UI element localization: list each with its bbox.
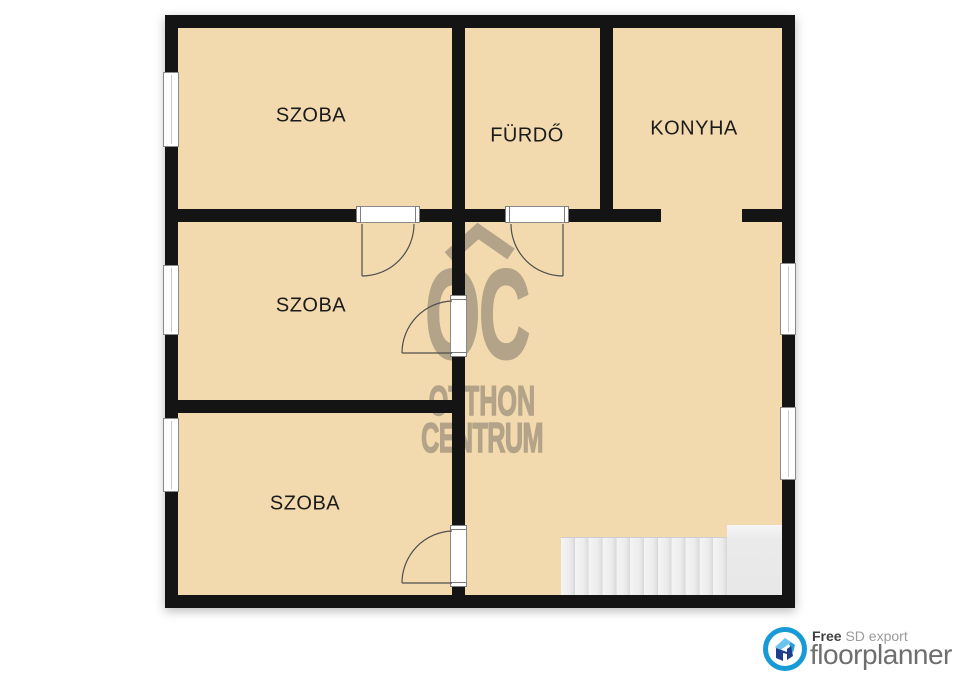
door-post — [450, 352, 467, 357]
window-glass — [171, 75, 172, 144]
window-right-lower — [780, 407, 796, 480]
wall-h2-szoba-divider — [165, 400, 465, 413]
door-post — [450, 582, 467, 587]
wall-outer-bottom — [165, 595, 795, 608]
door-opening-furdo — [505, 206, 569, 223]
wall-center-vertical-middle — [452, 355, 465, 525]
floorplanner-branding: Free SD export floorplanner — [762, 622, 952, 676]
staircase-landing — [727, 525, 782, 595]
door-opening-szoba-top — [356, 206, 420, 223]
door-post — [356, 206, 361, 223]
room-label-konyha: KONYHA — [650, 118, 737, 141]
door-post — [505, 206, 510, 223]
staircase-steps — [561, 537, 727, 596]
window-glass — [788, 266, 789, 332]
wall-furdo-konyha — [600, 15, 613, 222]
door-post — [415, 206, 420, 223]
door-opening-szoba-middle — [450, 295, 467, 357]
door-post — [450, 525, 467, 530]
watermark-monogram: OC — [425, 252, 529, 378]
window-left-middle — [163, 265, 179, 335]
door-post — [564, 206, 569, 223]
room-label-furdo: FÜRDŐ — [490, 125, 564, 148]
floorplanner-wordmark: floorplanner — [810, 639, 952, 671]
door-post — [450, 295, 467, 300]
window-glass — [171, 421, 172, 489]
room-label-szoba-top: SZOBA — [276, 105, 346, 128]
window-glass — [171, 268, 172, 332]
window-left-top — [163, 72, 179, 147]
wall-h1-konyha-stub-right — [742, 209, 795, 222]
room-label-szoba-middle: SZOBA — [276, 295, 346, 318]
watermark-line2: CENTRUM — [421, 417, 543, 459]
window-right-upper — [780, 263, 796, 335]
floorplan-export-canvas: OC OTTHON CENTRUM — [0, 0, 960, 679]
wall-center-vertical-lower — [452, 585, 465, 608]
door-opening-szoba-bottom — [450, 525, 467, 587]
wall-h1-konyha-stub-left — [567, 209, 661, 222]
window-left-bottom — [163, 418, 179, 492]
wall-h1-mid — [418, 209, 507, 222]
window-glass — [788, 410, 789, 477]
wall-center-vertical-upper — [452, 15, 465, 295]
wall-h1-left — [165, 209, 358, 222]
room-label-szoba-bottom: SZOBA — [270, 493, 340, 516]
wall-outer-top — [165, 15, 795, 28]
floorplanner-logo-icon — [762, 626, 808, 672]
